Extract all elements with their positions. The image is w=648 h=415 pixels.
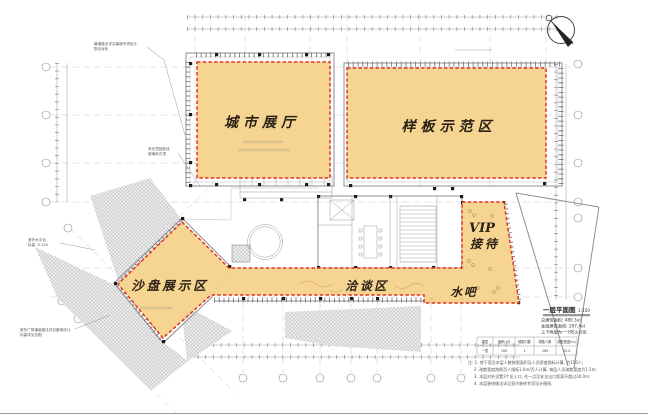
note-3: 3. 本层对外设置3个出入口, 任一点至安全出口距离不超过30.0m; (474, 373, 590, 379)
notes-list: 注: 1. 地下室及本层人数按照面积及人员密度指标计算, 约150人; 2. 疏… (468, 359, 597, 386)
egress-table: 楼层 面积(㎡) 疏散口数 疏散人数 疏散宽度(m) 一层 150 1 164 … (477, 337, 577, 355)
note-2: 2. 疏散宽度按照百人指标1.0m/百人计算, 每层人员疏散宽度为1.5m; (474, 366, 597, 372)
table-cell-occupants: 164 (542, 349, 548, 353)
annotation-skylight-2: 玻璃采光顶 (148, 151, 166, 156)
note-1: 注: 1. 地下室及本层人数按照面积及人员密度指标计算, 约150人; (468, 359, 583, 365)
north-arrow-icon (546, 15, 574, 47)
table-cell-width: 15.4 (563, 349, 570, 353)
annotation-wood-deck: 室外木平台 (28, 237, 46, 242)
label-sample-demo: 样板示范区 (402, 118, 497, 135)
floor-plan-drawing: 城市展厅 样板示范区 沙盘展示区 洽谈区 水吧 VIP 接待 幕墙做法详见幕墙专… (0, 0, 648, 415)
interior-fittings (240, 176, 437, 268)
info-line-1: 总建筑面积: 489.3㎡ (541, 317, 582, 324)
label-vip-line2: 接待 (470, 237, 500, 251)
info-line-3: 上下两层为一个防火分区 (541, 329, 587, 336)
table-header-floor: 楼层 (482, 339, 488, 344)
label-vip-line1: VIP (469, 221, 496, 236)
drawing-scale: 1:150 (578, 308, 590, 313)
annotation-plaza-paving: 室外广场铺装做法详见景观设计, (20, 327, 71, 332)
label-water-bar: 水吧 (451, 285, 478, 299)
label-sand-table: 沙盘展示区 (131, 278, 209, 293)
table-cell-exits: 1 (523, 349, 525, 353)
drawing-title: 一层平面图 (543, 305, 576, 314)
annotation-skylight: 采光顶投影线 (148, 146, 170, 151)
table-header-area: 面积(㎡) (498, 339, 510, 344)
label-city-exhibition: 城市展厅 (224, 114, 300, 131)
note-4: 4. 本层装修做法详见室内装修专项设计图纸. (474, 380, 552, 386)
table-cell-area: 150 (501, 349, 507, 353)
table-header-width: 疏散宽度(m) (557, 339, 575, 344)
label-negotiation: 洽谈区 (345, 279, 389, 293)
table-cell-floor: 一层 (482, 348, 488, 353)
table-header-occupants: 疏散人数 (539, 339, 553, 344)
annotation-plaza-paving-2: 标高详见总图 (20, 332, 42, 337)
annotation-curtain-wall: 幕墙做法详见幕墙专项设计 (94, 41, 138, 46)
info-line-2: 本层建筑面积: 297.4㎡ (541, 323, 586, 330)
table-header-exits: 疏散口数 (518, 339, 532, 344)
annotation-wood-deck-level: 标高 -0.150 (28, 242, 49, 247)
floor-plan-page: 城市展厅 样板示范区 沙盘展示区 洽谈区 水吧 VIP 接待 幕墙做法详见幕墙专… (0, 0, 648, 415)
annotation-curtain-wall-2: 配合深化 (94, 46, 109, 51)
